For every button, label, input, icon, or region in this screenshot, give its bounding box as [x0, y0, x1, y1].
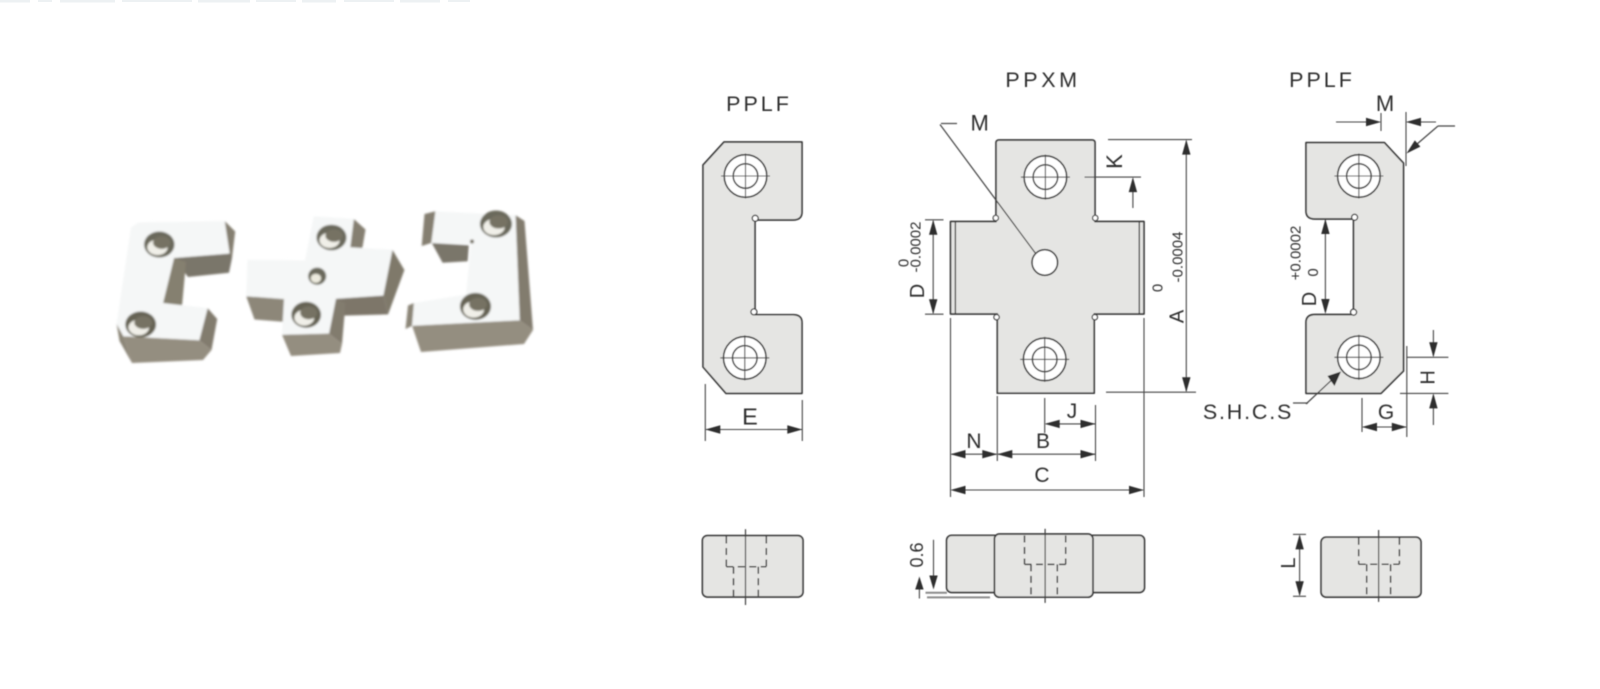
- svg-text:M: M: [971, 111, 989, 136]
- svg-text:J: J: [1067, 400, 1078, 423]
- svg-text:-0.0004: -0.0004: [1170, 232, 1187, 283]
- svg-text:D: D: [1299, 292, 1321, 306]
- svg-text:C: C: [1034, 464, 1049, 487]
- svg-text:K: K: [1102, 154, 1127, 169]
- svg-text:N: N: [966, 430, 981, 453]
- svg-text:D: D: [907, 284, 929, 298]
- svg-text:0: 0: [896, 259, 913, 267]
- svg-text:M: M: [1376, 91, 1394, 116]
- svg-text:PPLF: PPLF: [726, 92, 792, 116]
- svg-text:H: H: [1418, 370, 1440, 384]
- svg-text:0.6: 0.6: [907, 542, 927, 567]
- svg-text:A: A: [1167, 309, 1189, 323]
- svg-text:0: 0: [1305, 268, 1322, 276]
- svg-text:0: 0: [1150, 284, 1167, 292]
- svg-text:E: E: [742, 404, 758, 430]
- svg-text:G: G: [1378, 401, 1394, 424]
- svg-text:B: B: [1036, 430, 1050, 453]
- svg-text:S.H.C.S: S.H.C.S: [1203, 400, 1293, 424]
- svg-text:+0.0002: +0.0002: [1288, 226, 1305, 281]
- svg-text:PPLF: PPLF: [1289, 68, 1355, 92]
- svg-text:PPXM: PPXM: [1005, 68, 1080, 92]
- svg-text:L: L: [1278, 557, 1300, 568]
